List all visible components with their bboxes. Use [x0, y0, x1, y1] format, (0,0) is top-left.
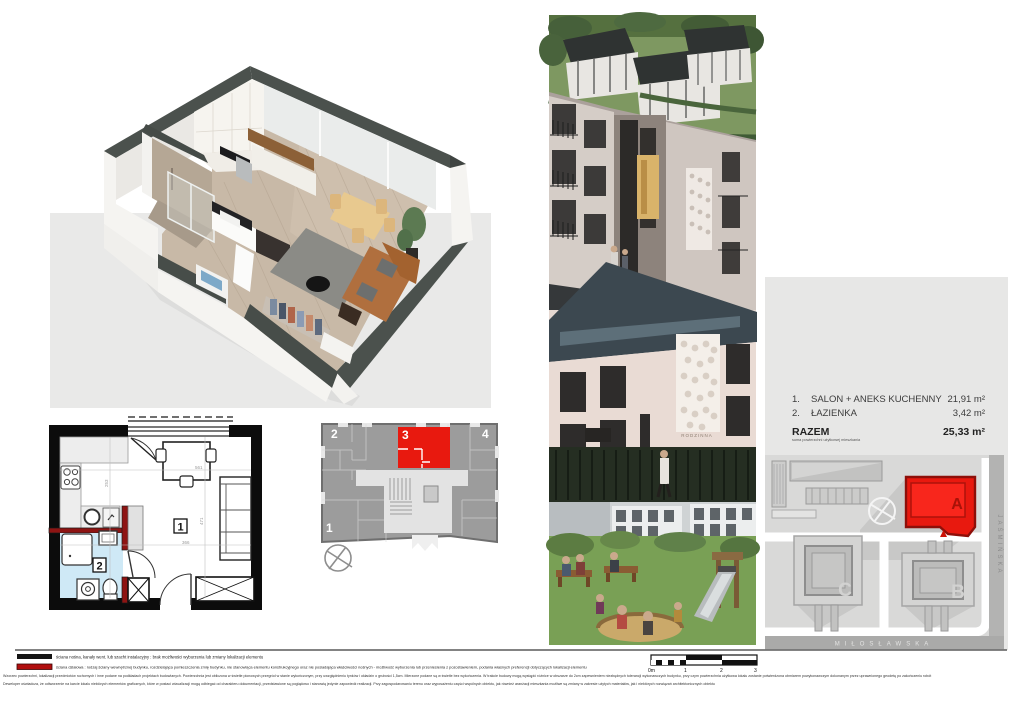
svg-text:253: 253: [104, 479, 109, 487]
svg-text:21,91 m²: 21,91 m²: [948, 394, 986, 405]
svg-text:ściana działowa : rodzaj ścian: ściana działowa : rodzaj ściany wewnętrz…: [56, 665, 587, 670]
svg-text:1: 1: [326, 521, 333, 535]
svg-text:2: 2: [331, 427, 338, 441]
svg-text:1: 1: [684, 668, 687, 674]
svg-text:A: A: [951, 496, 963, 513]
svg-text:0m: 0m: [648, 668, 655, 674]
svg-text:366: 366: [182, 540, 190, 545]
svg-text:SALON + ANEKS KUCHENNY: SALON + ANEKS KUCHENNY: [811, 394, 942, 405]
svg-text:1: 1: [177, 522, 183, 534]
svg-text:ŁAZIENKA: ŁAZIENKA: [811, 408, 858, 419]
svg-text:RAZEM: RAZEM: [792, 426, 830, 438]
svg-text:C: C: [838, 580, 852, 601]
svg-text:561: 561: [195, 465, 203, 470]
svg-text:2: 2: [96, 561, 102, 573]
svg-text:3: 3: [402, 428, 409, 442]
svg-text:ściana nośna, kanały went. lub: ściana nośna, kanały went. lub szacht in…: [56, 655, 264, 660]
svg-text:1.: 1.: [792, 394, 800, 405]
svg-text:Wzorzec powierzchni, lokalizac: Wzorzec powierzchni, lokalizacji przedmi…: [3, 674, 931, 678]
svg-text:3,42 m²: 3,42 m²: [953, 408, 985, 419]
svg-text:RODZINNA: RODZINNA: [681, 433, 713, 438]
svg-text:JAŚMIŃSKA: JAŚMIŃSKA: [996, 514, 1004, 575]
svg-text:471: 471: [199, 517, 204, 525]
svg-text:4: 4: [482, 427, 489, 441]
svg-text:3: 3: [754, 668, 757, 674]
svg-text:Deweloper oświadcza, że odtwor: Deweloper oświadcza, że odtworzenie na k…: [3, 682, 715, 686]
svg-text:suma powierzchni użytkowej mie: suma powierzchni użytkowej mieszkania: [792, 438, 861, 442]
svg-text:25,33 m²: 25,33 m²: [943, 426, 986, 438]
svg-text:2: 2: [720, 668, 723, 674]
svg-text:MIŁOSŁAWSKA: MIŁOSŁAWSKA: [835, 642, 933, 648]
svg-text:B: B: [951, 582, 965, 603]
svg-text:2.: 2.: [792, 408, 800, 419]
